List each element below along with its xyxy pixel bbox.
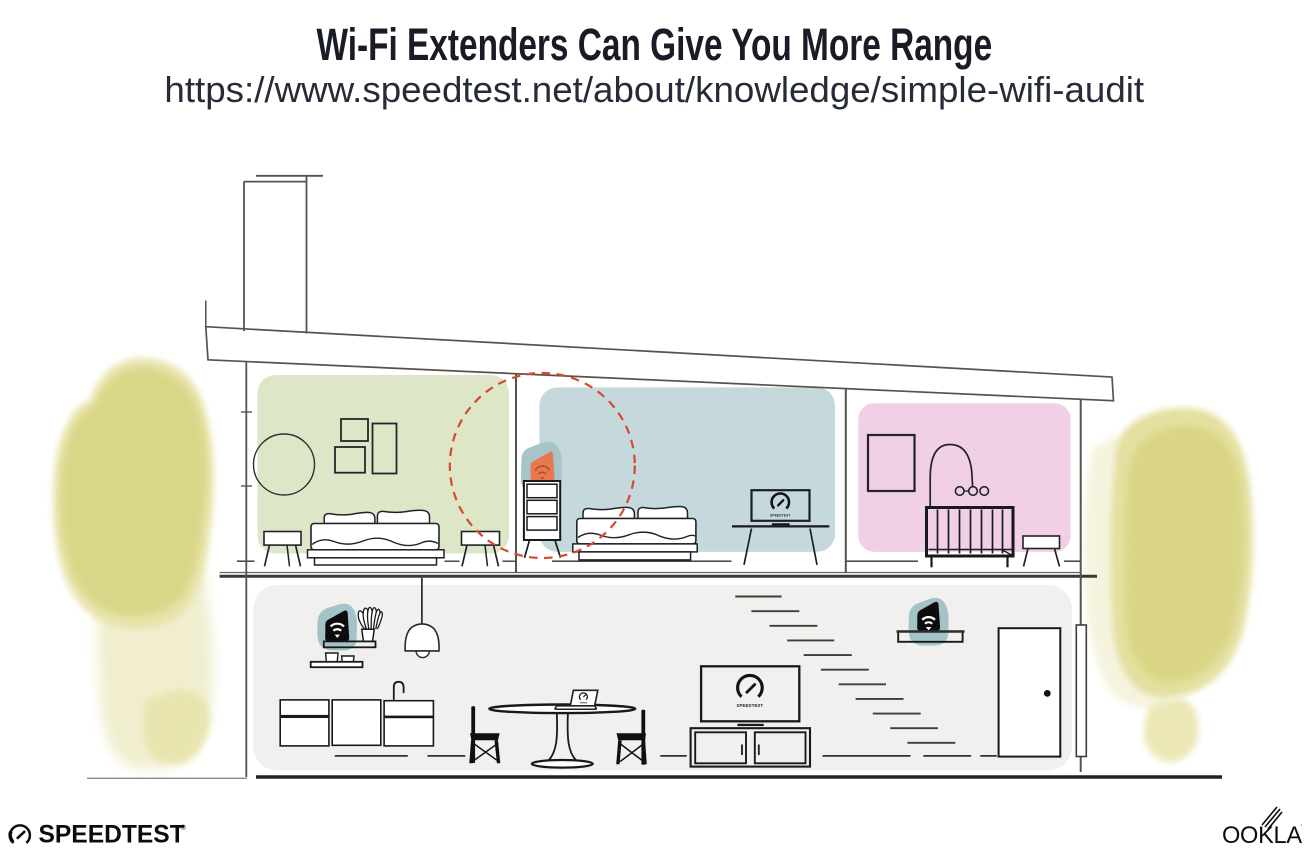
svg-text:®: ® — [181, 824, 187, 832]
svg-text:OOKLA: OOKLA — [1222, 823, 1302, 849]
svg-text:SPEEDTEST: SPEEDTEST — [39, 822, 185, 849]
svg-text:': ' — [1301, 824, 1302, 831]
svg-text:SPEEDTEST: SPEEDTEST — [770, 513, 790, 517]
svg-text:SPEEDTEST: SPEEDTEST — [737, 703, 764, 708]
